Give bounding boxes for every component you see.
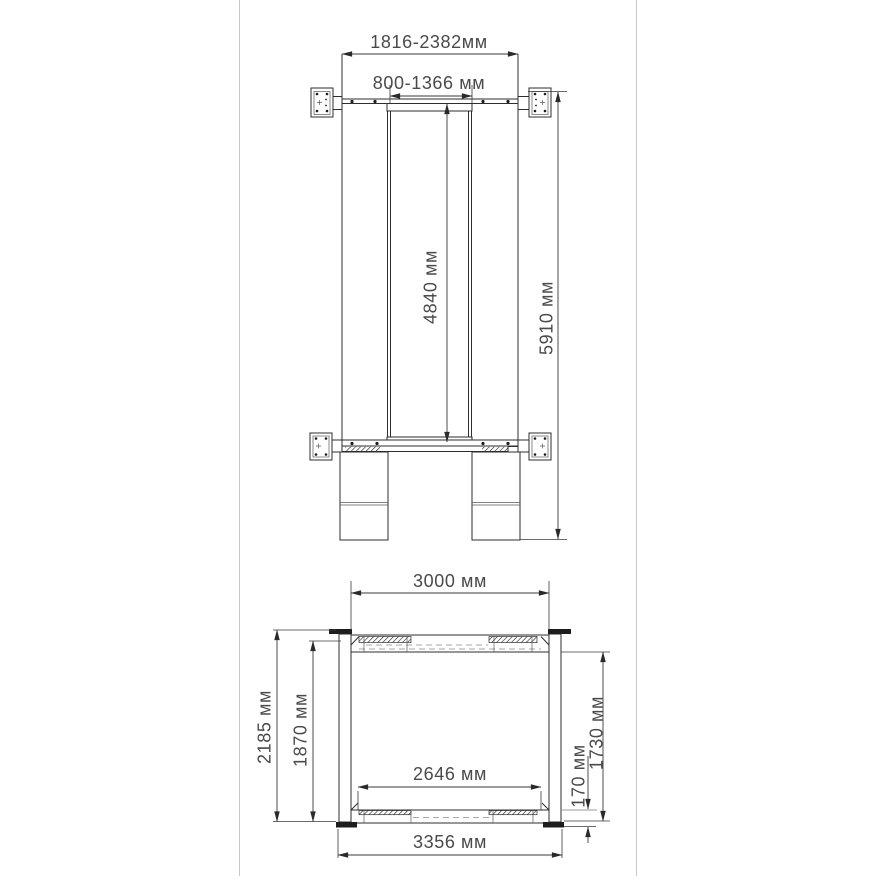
bolt-hole [350,442,353,445]
tread-hatch-strip [359,811,411,815]
top-crossbeam [342,99,518,104]
bolt-hole [375,442,378,445]
bracket-stub [518,97,529,110]
dim-inner-length: 4840 мм [420,104,447,442]
lift-dimension-drawing: 1816-2382мм 800-1366 мм 4840 мм 5910 мм [0,0,876,876]
platform-end-chamfer [542,803,549,810]
dim-label-under-beam-clearance: 1730 мм [586,696,606,770]
bolt-hole [506,442,509,445]
bracket-stub [333,97,342,110]
bracket-stub [518,440,529,452]
right-post-cap-plate [548,629,571,634]
left-base-plate [336,822,357,828]
dim-inner-width: 2646 мм [358,764,541,810]
post-bracket-top-right [518,88,551,117]
dim-label-overall-length: 5910 мм [536,281,556,355]
bolt-hole [373,100,376,103]
dim-label-overall-height: 2185 мм [254,690,274,764]
left-post [339,634,351,822]
front-top-crossbeam [351,635,549,652]
right-ramp [472,452,520,540]
lift-dimension-drawing-page: 1816-2382мм 800-1366 мм 4840 мм 5910 мм [0,0,876,876]
platform-end-chamfer [351,803,358,810]
dim-clearance-height: 1870 мм [290,641,341,822]
dim-label-base-height: 170 мм [568,744,588,807]
bolt-hole [481,442,484,445]
anchor-hatch-strip [345,447,380,451]
dim-overall-width-front: 3356 мм [338,829,562,858]
tread-hatch-strip [359,637,411,643]
post-bracket-bottom-left [310,433,342,460]
tread-hatch-strip [489,637,537,643]
bolt-hole [506,100,509,103]
bolt-hole [481,100,484,103]
tread-hatch-strip [489,811,537,815]
dim-top-width: 3000 мм [351,571,549,630]
dim-label-inner-length: 4840 мм [420,250,440,324]
dim-label-clearance-height: 1870 мм [290,693,310,767]
left-ramp [340,452,388,540]
dim-label-top-width: 3000 мм [413,571,487,591]
bolt-hole [350,100,353,103]
dim-overall-length: 5910 мм [520,92,567,540]
top-view: 1816-2382мм 800-1366 мм 4840 мм 5910 мм [310,32,567,540]
dim-label-overall-width-front: 3356 мм [413,832,487,852]
dim-label-overall-width: 1816-2382мм [370,32,487,52]
post-bracket-bottom-right [518,433,551,460]
bottom-crossbeam [342,440,518,446]
carriage-plate-top [387,104,472,112]
bracket-stub [332,440,342,452]
front-view: 3000 мм 2185 мм 1870 мм 1730 мм [254,571,610,858]
right-post [549,634,561,822]
front-bottom-platform [351,803,549,823]
post-bracket-top-left [311,88,342,117]
dim-label-carriage-width: 800-1366 мм [373,73,485,93]
dim-label-inner-width: 2646 мм [413,764,487,784]
dim-overall-width: 1816-2382мм [342,32,518,54]
right-base-plate [543,822,564,828]
